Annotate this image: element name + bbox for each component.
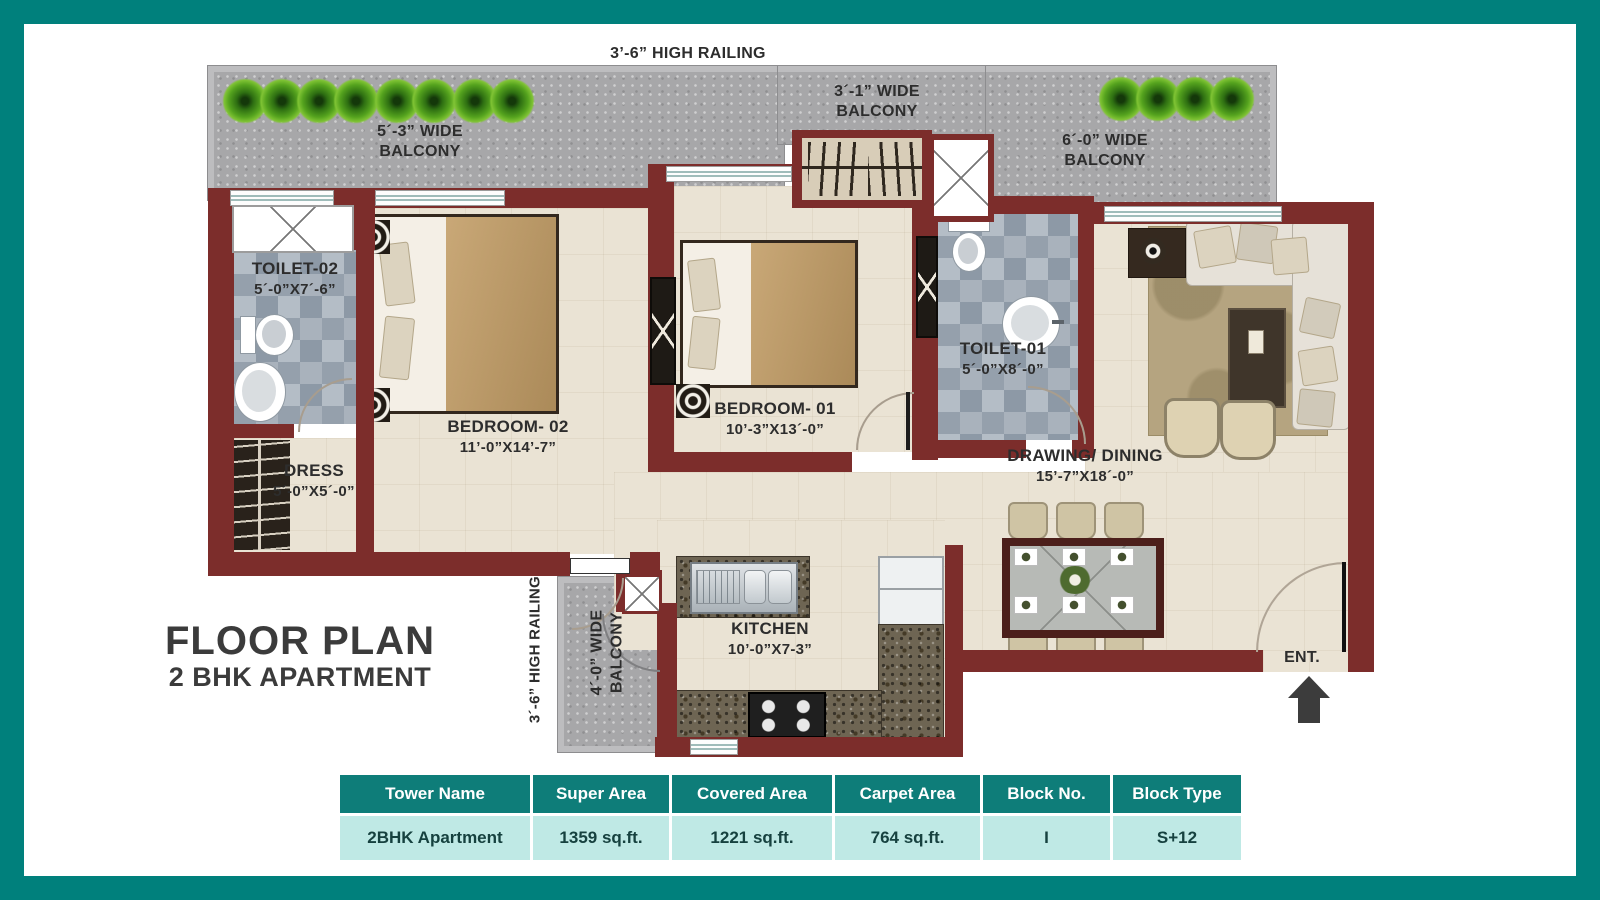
room-name: KITCHEN [710, 618, 830, 640]
spec-data-cell: I [983, 816, 1110, 860]
wash-basin-icon [234, 362, 286, 422]
room-name: DRESS [252, 460, 376, 482]
balcony-word: BALCONY [812, 102, 942, 122]
spec-header-cell: Block No. [983, 775, 1110, 813]
sofa-pillow [1193, 225, 1237, 269]
spec-header-cell: Super Area [533, 775, 669, 813]
bedroom02-label: BEDROOM- 02 11’-0”X14’-7” [428, 416, 588, 457]
placemat [1110, 548, 1134, 566]
spec-table: Tower Name Super Area Covered Area Carpe… [340, 775, 1232, 860]
entrance-arrow-stem [1298, 697, 1320, 723]
dress-label: DRESS 5´-0”X5´-0” [252, 460, 376, 501]
balcony-label-top-mid: 3´-1” WIDE BALCONY [812, 82, 942, 123]
wall [982, 196, 1092, 214]
balcony-dim: 6´-0” WIDE [1040, 131, 1170, 151]
placemat [1062, 596, 1086, 614]
dining-chair [1056, 502, 1096, 540]
balcony-label-bottom: 4´-0” WIDE BALCONY [588, 572, 629, 732]
placemat [1062, 548, 1086, 566]
room-dims: 15’-7”X18´-0” [995, 467, 1175, 486]
door-leaf [906, 392, 910, 450]
placemat [1014, 596, 1038, 614]
spec-data-cell: 1359 sq.ft. [533, 816, 669, 860]
wall [945, 545, 963, 757]
gas-hob [748, 692, 826, 738]
spec-table-data-row: 2BHK Apartment 1359 sq.ft. 1221 sq.ft. 7… [340, 813, 1232, 860]
window [375, 190, 505, 206]
fridge [878, 556, 944, 626]
room-dims: 5´-0”X5´-0” [252, 482, 376, 501]
balcony-dim: 3´-1” WIDE [812, 82, 942, 102]
toilet-wc-icon [240, 312, 294, 356]
room-dims: 10’-0”X7-3” [710, 640, 830, 659]
spec-data-cell: 764 sq.ft. [835, 816, 980, 860]
spec-data-cell: 2BHK Apartment [340, 816, 530, 860]
wall [648, 452, 852, 472]
floor-plan-page: 3’-6” HIGH RAILING 5´-3” WIDE BALCONY 3´… [0, 0, 1600, 900]
shaft-icon [232, 205, 354, 253]
spec-header-cell: Block Type [1113, 775, 1241, 813]
placemat [1110, 596, 1134, 614]
spec-header-cell: Tower Name [340, 775, 530, 813]
wardrobe-clothes [868, 142, 916, 196]
bed [371, 214, 559, 414]
bed-pillow [379, 316, 415, 381]
room-name: TOILET-02 [236, 258, 354, 280]
dining-chair [1104, 502, 1144, 540]
railing-label-left: 3´-6” HIGH RAILING [525, 560, 544, 740]
room-dims: 11’-0”X14’-7” [428, 438, 588, 457]
bed-pillow [687, 316, 720, 371]
window [1104, 206, 1282, 222]
drawing-label: DRAWING/ DINING 15’-7”X18´-0” [995, 445, 1175, 486]
bed-pillow [687, 257, 721, 312]
entrance-arrow-icon [1288, 676, 1330, 698]
door-leaf [1342, 562, 1346, 652]
shaft-icon [928, 134, 994, 222]
bed [680, 240, 858, 388]
balcony-word: BALCONY [608, 572, 628, 732]
entrance-label: ENT. [1272, 648, 1332, 668]
sofa-pillow [1296, 388, 1336, 428]
kitchen-sink [690, 562, 798, 614]
page-title: FLOOR PLAN 2 BHK APARTMENT [158, 620, 442, 693]
wall [234, 424, 294, 438]
balcony-word: BALCONY [1040, 151, 1170, 171]
spec-data-cell: 1221 sq.ft. [672, 816, 832, 860]
spec-table-header-row: Tower Name Super Area Covered Area Carpe… [340, 775, 1232, 813]
wall [1348, 202, 1374, 672]
dark-window [650, 277, 676, 385]
toilet-wc-icon [946, 216, 992, 274]
spec-data-cell: S+12 [1113, 816, 1241, 860]
room-name: DRAWING/ DINING [995, 445, 1175, 467]
title-line1: FLOOR PLAN [158, 620, 442, 662]
sofa-pillow [1297, 345, 1338, 386]
window [690, 739, 738, 755]
coffee-table [1228, 308, 1286, 408]
sofa-pillow [1299, 297, 1342, 340]
plant-icon [489, 78, 535, 124]
room-name: TOILET-01 [938, 338, 1068, 360]
wall [208, 188, 234, 576]
balcony-dim: 5´-3” WIDE [355, 122, 485, 142]
balcony-word: BALCONY [355, 142, 485, 162]
wardrobe [802, 138, 922, 200]
placemat [1014, 548, 1038, 566]
plant-icon [333, 78, 379, 124]
dark-window [916, 236, 938, 338]
balcony-dim: 4´-0” WIDE [588, 572, 608, 732]
wall [356, 188, 374, 576]
balcony-label-top-right: 6´-0” WIDE BALCONY [1040, 131, 1170, 172]
sink-bowl [768, 570, 792, 604]
room-dims: 5´-0”X7´-6” [236, 280, 354, 299]
sink-bowl [744, 570, 766, 604]
candle-icon [1248, 330, 1264, 354]
dining-chair [1008, 502, 1048, 540]
bed-blanket [751, 243, 855, 385]
plant-icon [411, 78, 457, 124]
title-line2: 2 BHK APARTMENT [158, 662, 442, 693]
window [230, 190, 334, 206]
balcony-label-top-left: 5´-3” WIDE BALCONY [355, 122, 485, 163]
bedroom01-label: BEDROOM- 01 10’-3”X13´-0” [690, 398, 860, 439]
toilet01-label: TOILET-01 5´-0”X8´-0” [938, 338, 1068, 379]
wardrobe-clothes [808, 142, 856, 196]
centerpiece-icon [1056, 566, 1094, 594]
armchair [1220, 400, 1276, 460]
spec-header-cell: Carpet Area [835, 775, 980, 813]
window [666, 166, 792, 182]
kitchen-label: KITCHEN 10’-0”X7-3” [710, 618, 830, 659]
toilet02-label: TOILET-02 5´-0”X7´-6” [236, 258, 354, 299]
speaker-icon [1140, 238, 1166, 264]
sink-drainboard [696, 570, 740, 604]
spec-header-cell: Covered Area [672, 775, 832, 813]
room-name: BEDROOM- 02 [428, 416, 588, 438]
railing-label-top: 3’-6” HIGH RAILING [558, 44, 818, 64]
kitchen-counter-right [878, 624, 944, 738]
wall [208, 552, 570, 576]
bed-blanket [446, 217, 556, 411]
room-dims: 5´-0”X8´-0” [938, 360, 1068, 379]
room-name: BEDROOM- 01 [690, 398, 860, 420]
plant-icon [1209, 76, 1255, 122]
wall [945, 650, 1263, 672]
room-dims: 10’-3”X13´-0” [690, 420, 860, 439]
wall [657, 603, 677, 751]
sofa-pillow [1270, 236, 1309, 275]
